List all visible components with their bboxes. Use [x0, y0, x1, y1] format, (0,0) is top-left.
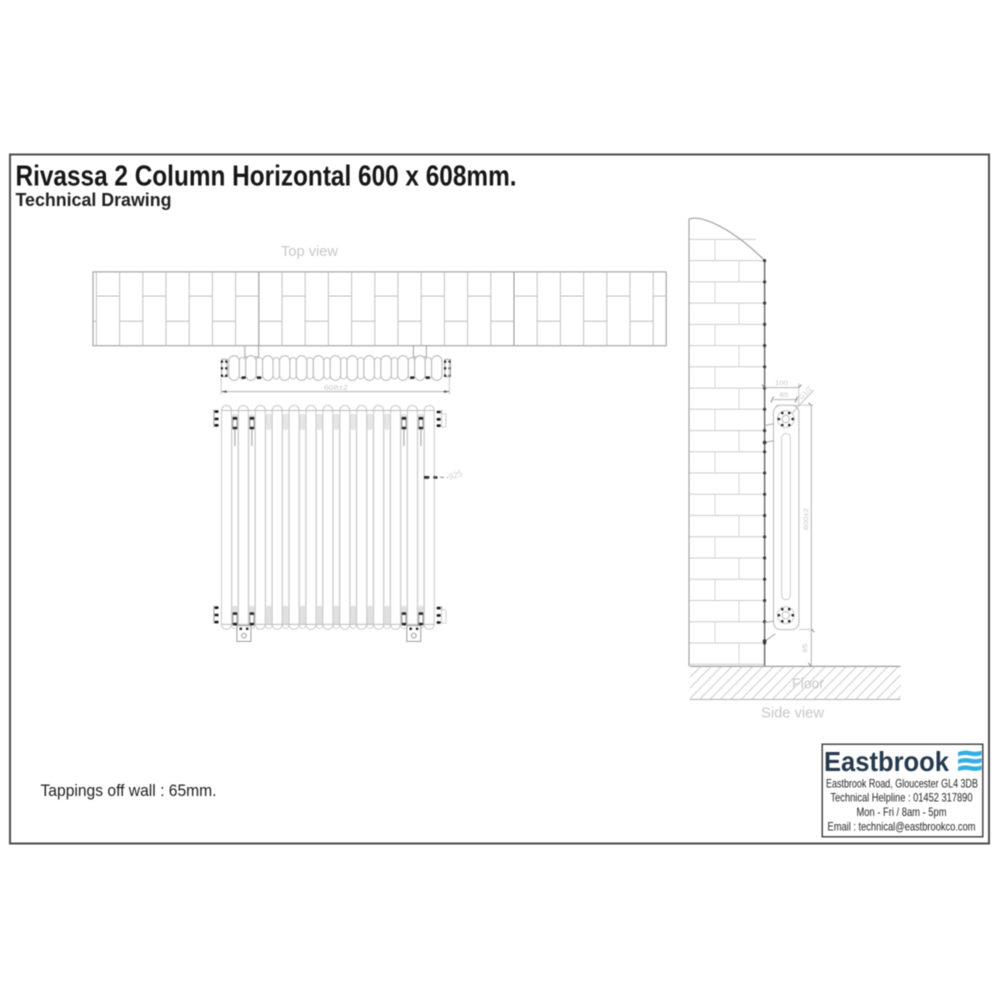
svg-text:Eastbrook Road, Gloucester GL4: Eastbrook Road, Gloucester GL4 3DB — [826, 776, 978, 790]
svg-text:Technical Drawing: Technical Drawing — [16, 190, 172, 210]
svg-text:Technical Helpline : 01452 317: Technical Helpline : 01452 317890 — [831, 791, 973, 805]
svg-text:600±2: 600±2 — [803, 508, 810, 530]
svg-text:65: 65 — [802, 643, 809, 652]
svg-text:100: 100 — [775, 380, 788, 387]
svg-text:G1/2: G1/2 — [798, 385, 813, 401]
svg-text:925: 925 — [447, 468, 464, 482]
svg-text:65: 65 — [780, 392, 789, 399]
svg-text:608±2: 608±2 — [324, 383, 348, 392]
svg-text:Floor: Floor — [792, 676, 824, 693]
svg-text:Rivassa 2 Column Horizontal 60: Rivassa 2 Column Horizontal 600 x 608mm. — [16, 160, 517, 192]
svg-text:Eastbrook: Eastbrook — [824, 746, 950, 777]
svg-text:Email : technical@eastbrookco.: Email : technical@eastbrookco.com — [828, 820, 976, 834]
svg-text:Tappings off wall : 65mm.: Tappings off wall : 65mm. — [41, 781, 217, 800]
svg-text:Mon - Fri / 8am - 5pm: Mon - Fri / 8am - 5pm — [857, 805, 947, 819]
svg-text:Side view: Side view — [761, 705, 824, 722]
svg-text:Top view: Top view — [281, 243, 338, 260]
